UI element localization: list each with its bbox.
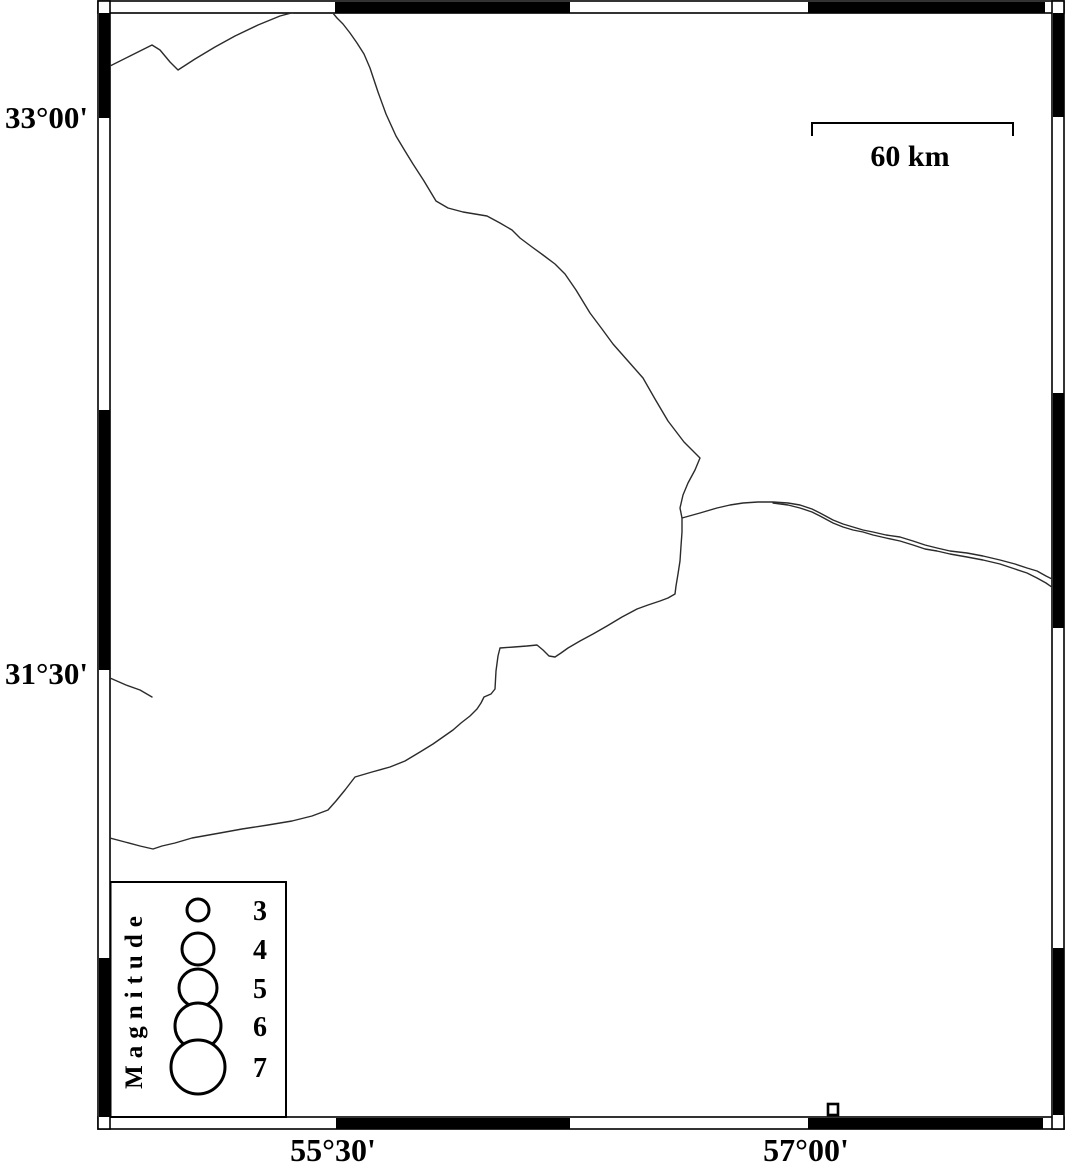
coastline-main xyxy=(110,12,700,849)
legend-value-7: 7 xyxy=(253,1053,267,1084)
legend-circle-m4 xyxy=(182,933,214,965)
frame-segment xyxy=(336,1118,570,1129)
frame-segment xyxy=(1053,393,1064,628)
legend-circle-m5 xyxy=(179,969,217,1007)
scale-bar-bracket xyxy=(812,123,1013,136)
frame-segment xyxy=(1053,948,1064,1115)
lat-label-33: 33°00' xyxy=(5,100,88,135)
legend-value-5: 5 xyxy=(253,974,267,1005)
map-figure: 33°00' 31°30' 55°30' 57°00' 60 km Magnit… xyxy=(0,0,1066,1166)
frame-segment xyxy=(1053,13,1064,117)
lon-label-55-30: 55°30' xyxy=(290,1132,376,1166)
legend-title: Magnitude xyxy=(121,909,148,1089)
legend-value-6: 6 xyxy=(253,1012,267,1043)
lat-label-31-30: 31°30' xyxy=(5,656,88,691)
frame-segment xyxy=(808,1118,1043,1129)
boundary-east-lower xyxy=(773,503,1056,590)
scale-bar-label: 60 km xyxy=(870,140,949,173)
scale-bar: 60 km xyxy=(812,123,1013,173)
frame-segment xyxy=(99,410,110,670)
small-square-marker xyxy=(828,1104,838,1115)
frame-segment xyxy=(99,958,110,1117)
legend-circle-m3 xyxy=(187,899,209,921)
legend-value-4: 4 xyxy=(253,935,267,966)
frame-segment xyxy=(808,2,1045,13)
frame-segment xyxy=(99,13,110,118)
legend-circle-m7 xyxy=(171,1040,225,1094)
lon-label-57-00: 57°00' xyxy=(763,1132,849,1166)
frame-segment xyxy=(335,2,570,13)
boundary-east-upper xyxy=(682,502,1056,581)
magnitude-legend: Magnitude 3 4 5 6 7 xyxy=(111,882,287,1117)
coastline-fragment xyxy=(110,678,152,697)
legend-value-3: 3 xyxy=(253,896,267,927)
map-canvas: 33°00' 31°30' 55°30' 57°00' 60 km Magnit… xyxy=(0,0,1066,1166)
